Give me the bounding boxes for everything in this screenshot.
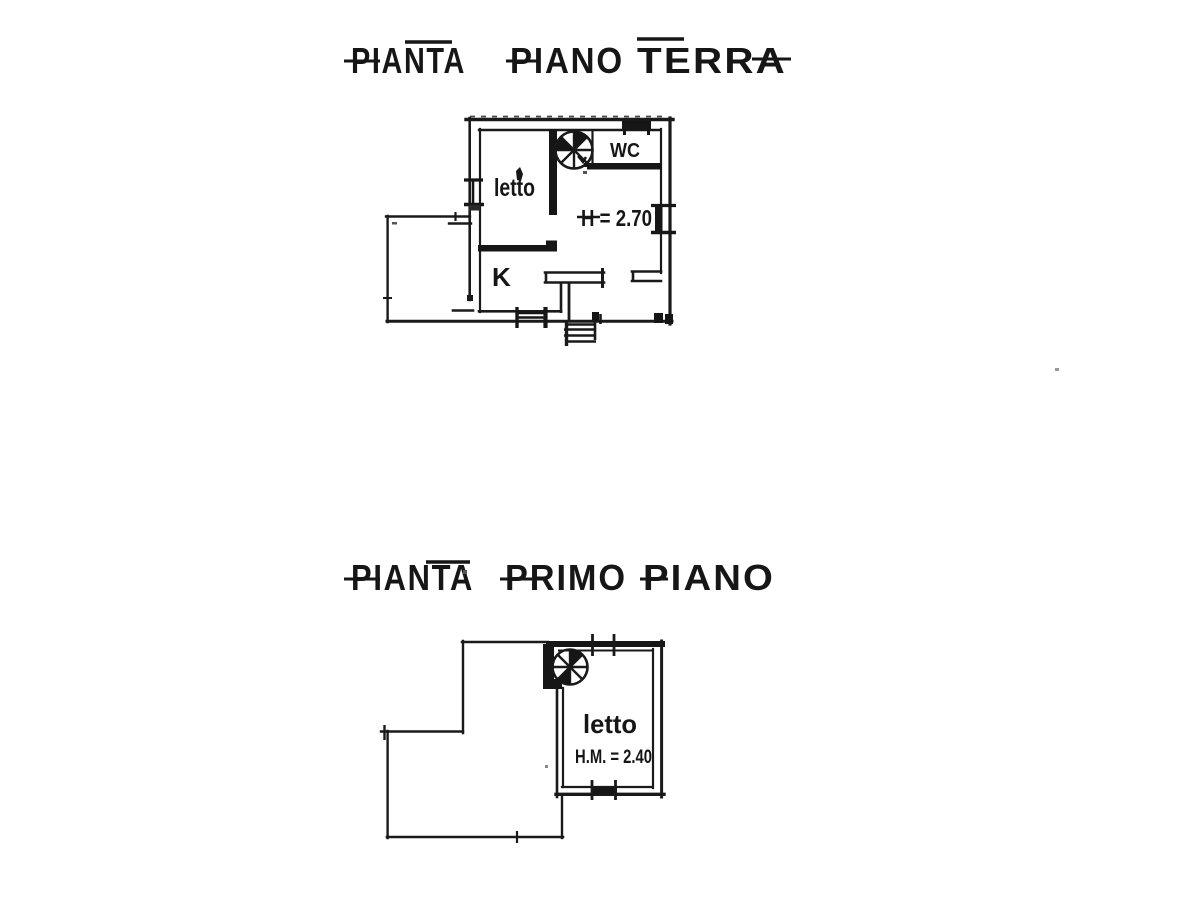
- svg-text:WC: WC: [610, 140, 640, 162]
- svg-text:H.M. = 2.40: H.M. = 2.40: [575, 747, 652, 768]
- svg-text:K: K: [492, 262, 511, 292]
- svg-text:letto: letto: [583, 709, 637, 739]
- svg-text:letto: letto: [494, 174, 535, 202]
